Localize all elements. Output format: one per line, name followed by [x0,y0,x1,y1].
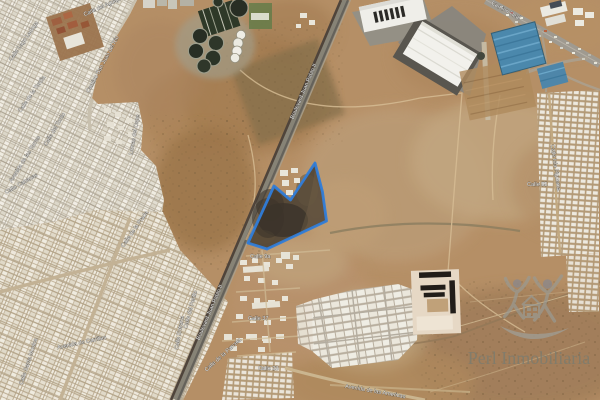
svg-text:Calle 37: Calle 37 [248,316,269,322]
svg-text:Calle 23: Calle 23 [258,366,279,372]
svg-text:Calle 9a: Calle 9a [250,254,271,260]
svg-text:Perl Inmobiliaria: Perl Inmobiliaria [468,348,590,368]
svg-text:Calle 55: Calle 55 [527,182,548,188]
